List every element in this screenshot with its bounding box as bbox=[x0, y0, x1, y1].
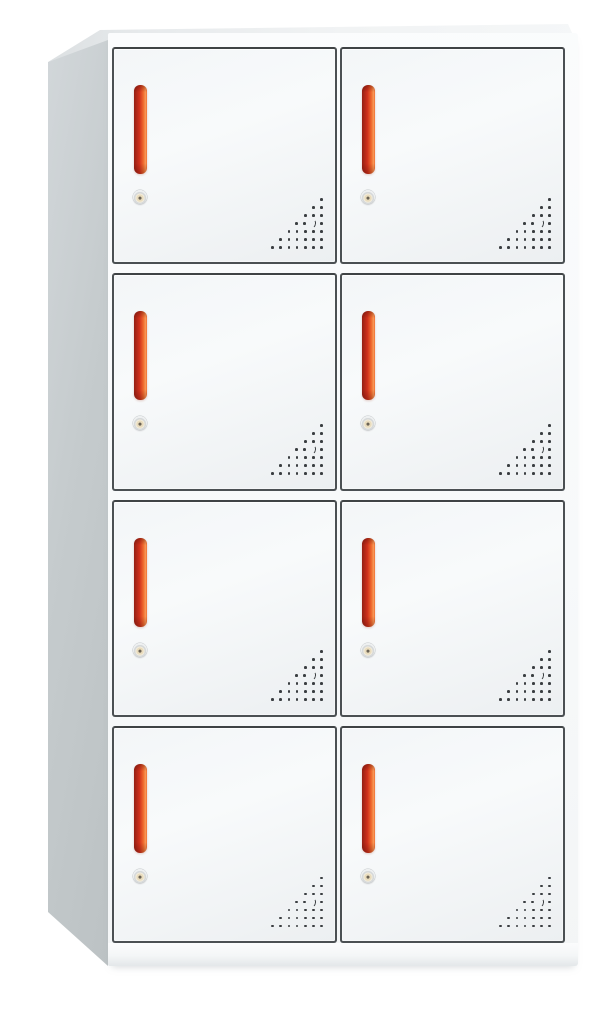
vent-dot bbox=[288, 690, 291, 693]
vent-dot bbox=[540, 893, 543, 896]
vent-dot bbox=[540, 885, 543, 888]
vent-row bbox=[518, 672, 551, 680]
vent-dot bbox=[524, 682, 527, 685]
vent-dot bbox=[540, 682, 543, 685]
vent-dot bbox=[548, 650, 551, 653]
vent-dot bbox=[548, 456, 551, 459]
vent-dot bbox=[312, 690, 315, 693]
vent-dot bbox=[523, 222, 526, 225]
vent-dot bbox=[320, 885, 323, 888]
vent-dot bbox=[296, 472, 299, 475]
vent-dot bbox=[540, 206, 543, 209]
vent-dot bbox=[548, 893, 551, 896]
vent-perforation bbox=[494, 422, 551, 478]
vent-dot bbox=[532, 690, 535, 693]
vent-row bbox=[282, 906, 323, 914]
vent-dot bbox=[548, 901, 551, 904]
vent-dot bbox=[295, 901, 298, 904]
vent-dot bbox=[540, 658, 543, 661]
vent-dot bbox=[312, 440, 315, 443]
vent-dot bbox=[279, 925, 282, 928]
vent-dot bbox=[320, 246, 323, 249]
vent-dot bbox=[312, 246, 315, 249]
vent-row bbox=[502, 235, 551, 243]
vent-dot bbox=[507, 917, 510, 920]
vent-dot bbox=[303, 222, 306, 225]
vent-dot bbox=[271, 472, 274, 475]
vent-row bbox=[543, 874, 551, 882]
vent-row bbox=[282, 227, 323, 235]
vent-dot bbox=[540, 456, 543, 459]
vent-perforation bbox=[494, 195, 551, 251]
vent-dot bbox=[288, 246, 291, 249]
vent-dot bbox=[548, 674, 551, 677]
vent-dot bbox=[304, 698, 307, 701]
vent-dot bbox=[532, 464, 535, 467]
vent-dot bbox=[320, 424, 323, 427]
vent-dot bbox=[304, 917, 307, 920]
vent-dot bbox=[532, 682, 535, 685]
vent-dot bbox=[548, 246, 551, 249]
vent-dot bbox=[540, 432, 543, 435]
vent-dot bbox=[312, 658, 315, 661]
key-lock bbox=[133, 869, 147, 883]
vent-row bbox=[535, 203, 551, 211]
vent-dot bbox=[288, 917, 291, 920]
vent-dot bbox=[288, 230, 291, 233]
vent-dot bbox=[548, 222, 551, 225]
vent-dot bbox=[312, 238, 315, 241]
vent-dot bbox=[296, 682, 299, 685]
vent-dot bbox=[499, 246, 502, 249]
door-handle bbox=[362, 311, 375, 400]
vent-dot bbox=[312, 666, 315, 669]
vent-dot bbox=[320, 456, 323, 459]
vent-dot bbox=[288, 464, 291, 467]
vent-dot bbox=[320, 917, 323, 920]
vent-dot bbox=[295, 674, 298, 677]
vent-dot bbox=[312, 917, 315, 920]
locker-door bbox=[112, 726, 337, 943]
vent-dot bbox=[516, 472, 519, 475]
vent-dot bbox=[288, 925, 291, 928]
vent-row bbox=[315, 874, 323, 882]
vent-row bbox=[494, 470, 551, 478]
vent-row bbox=[510, 454, 551, 462]
key-lock bbox=[133, 416, 147, 430]
vent-dot bbox=[288, 909, 291, 912]
vent-dot bbox=[320, 666, 323, 669]
vent-dot bbox=[304, 238, 307, 241]
key-lock bbox=[133, 643, 147, 657]
door-handle bbox=[362, 85, 375, 174]
locker-door bbox=[112, 500, 337, 717]
vent-dot bbox=[279, 917, 282, 920]
vent-row bbox=[307, 203, 323, 211]
vent-dot bbox=[524, 472, 527, 475]
vent-dot bbox=[296, 456, 299, 459]
locker-door bbox=[340, 47, 565, 264]
vent-dot bbox=[532, 238, 535, 241]
vent-dot bbox=[531, 901, 534, 904]
vent-row bbox=[298, 890, 323, 898]
vent-dot bbox=[320, 893, 323, 896]
key-lock bbox=[133, 190, 147, 204]
vent-dot bbox=[540, 909, 543, 912]
vent-dot bbox=[524, 230, 527, 233]
vent-dot bbox=[288, 238, 291, 241]
vent-row bbox=[535, 656, 551, 664]
vent-dot bbox=[548, 698, 551, 701]
vent-dot bbox=[548, 917, 551, 920]
vent-dot bbox=[532, 472, 535, 475]
vent-dot bbox=[304, 246, 307, 249]
door-handle bbox=[362, 764, 375, 853]
vent-dot bbox=[279, 246, 282, 249]
vent-dot bbox=[532, 246, 535, 249]
vent-row bbox=[307, 430, 323, 438]
vent-dot bbox=[516, 238, 519, 241]
vent-dot bbox=[524, 925, 527, 928]
vent-dot bbox=[288, 472, 291, 475]
vent-row bbox=[543, 422, 551, 430]
vent-dot bbox=[540, 472, 543, 475]
vent-perforation bbox=[266, 422, 323, 478]
vent-dot bbox=[523, 674, 526, 677]
vent-dot bbox=[524, 690, 527, 693]
vent-dot bbox=[516, 230, 519, 233]
vent-dot bbox=[279, 690, 282, 693]
vent-dot bbox=[507, 698, 510, 701]
vent-dot bbox=[516, 682, 519, 685]
vent-dot bbox=[507, 238, 510, 241]
vent-dot bbox=[296, 238, 299, 241]
vent-dot bbox=[548, 432, 551, 435]
vent-dot bbox=[516, 456, 519, 459]
vent-dot bbox=[548, 682, 551, 685]
vent-perforation bbox=[494, 874, 551, 930]
vent-dot bbox=[516, 698, 519, 701]
vent-dot bbox=[312, 698, 315, 701]
product-photo-locker-cabinet bbox=[0, 0, 605, 1009]
vent-dot bbox=[320, 650, 323, 653]
vent-dot bbox=[516, 909, 519, 912]
vent-dot bbox=[320, 877, 323, 880]
door-grid bbox=[112, 47, 565, 943]
vent-dot bbox=[320, 682, 323, 685]
vent-dot bbox=[312, 925, 315, 928]
vent-dot bbox=[320, 901, 323, 904]
vent-dot bbox=[540, 214, 543, 217]
vent-dot bbox=[532, 893, 535, 896]
vent-dot bbox=[516, 925, 519, 928]
vent-dot bbox=[296, 230, 299, 233]
vent-dot bbox=[531, 222, 534, 225]
vent-dot bbox=[548, 666, 551, 669]
vent-row bbox=[535, 430, 551, 438]
vent-dot bbox=[296, 909, 299, 912]
vent-row bbox=[307, 882, 323, 890]
locker-door bbox=[340, 500, 565, 717]
key-lock bbox=[361, 869, 375, 883]
vent-dot bbox=[304, 682, 307, 685]
key-lock bbox=[361, 416, 375, 430]
vent-dot bbox=[548, 238, 551, 241]
locker-door bbox=[112, 47, 337, 264]
vent-row bbox=[518, 219, 551, 227]
vent-row bbox=[266, 470, 323, 478]
vent-dot bbox=[516, 246, 519, 249]
vent-dot bbox=[304, 214, 307, 217]
vent-dot bbox=[516, 690, 519, 693]
vent-dot bbox=[548, 424, 551, 427]
door-handle bbox=[134, 764, 147, 853]
vent-dot bbox=[532, 917, 535, 920]
vent-dot bbox=[288, 682, 291, 685]
vent-dot bbox=[548, 206, 551, 209]
vent-row bbox=[266, 922, 323, 930]
vent-row bbox=[543, 195, 551, 203]
vent-row bbox=[518, 898, 551, 906]
vent-dot bbox=[304, 472, 307, 475]
vent-dot bbox=[524, 456, 527, 459]
vent-dot bbox=[524, 238, 527, 241]
vent-dot bbox=[548, 658, 551, 661]
vent-dot bbox=[320, 198, 323, 201]
cabinet-left-side-panel bbox=[48, 40, 108, 966]
vent-dot bbox=[540, 698, 543, 701]
vent-row bbox=[290, 898, 323, 906]
vent-dot bbox=[532, 666, 535, 669]
vent-dot bbox=[548, 877, 551, 880]
vent-dot bbox=[320, 674, 323, 677]
vent-row bbox=[282, 680, 323, 688]
vent-dot bbox=[532, 456, 535, 459]
vent-dot bbox=[524, 464, 527, 467]
vent-dot bbox=[548, 198, 551, 201]
vent-dot bbox=[320, 214, 323, 217]
vent-dot bbox=[532, 214, 535, 217]
vent-dot bbox=[288, 698, 291, 701]
vent-dot bbox=[312, 885, 315, 888]
vent-dot bbox=[296, 464, 299, 467]
vent-dot bbox=[548, 448, 551, 451]
vent-row bbox=[494, 243, 551, 251]
vent-dot bbox=[304, 440, 307, 443]
vent-perforation bbox=[266, 195, 323, 251]
vent-row bbox=[510, 227, 551, 235]
vent-dot bbox=[540, 440, 543, 443]
vent-row bbox=[282, 454, 323, 462]
vent-dot bbox=[507, 464, 510, 467]
vent-dot bbox=[540, 690, 543, 693]
vent-dot bbox=[271, 925, 274, 928]
vent-dot bbox=[279, 464, 282, 467]
vent-row bbox=[290, 219, 323, 227]
vent-dot bbox=[320, 238, 323, 241]
vent-dot bbox=[548, 464, 551, 467]
vent-dot bbox=[548, 230, 551, 233]
vent-row bbox=[290, 446, 323, 454]
vent-row bbox=[543, 648, 551, 656]
vent-perforation bbox=[266, 648, 323, 704]
vent-dot bbox=[279, 698, 282, 701]
vent-row bbox=[535, 882, 551, 890]
cabinet-front bbox=[108, 33, 578, 966]
vent-dot bbox=[304, 893, 307, 896]
vent-dot bbox=[296, 246, 299, 249]
vent-dot bbox=[303, 901, 306, 904]
vent-dot bbox=[271, 698, 274, 701]
vent-dot bbox=[312, 206, 315, 209]
vent-dot bbox=[320, 206, 323, 209]
vent-dot bbox=[531, 674, 534, 677]
vent-dot bbox=[540, 230, 543, 233]
vent-dot bbox=[295, 448, 298, 451]
vent-dot bbox=[320, 690, 323, 693]
vent-dot bbox=[320, 230, 323, 233]
vent-dot bbox=[303, 448, 306, 451]
locker-door bbox=[340, 726, 565, 943]
vent-row bbox=[510, 680, 551, 688]
vent-dot bbox=[524, 698, 527, 701]
vent-dot bbox=[532, 909, 535, 912]
vent-dot bbox=[531, 448, 534, 451]
vent-row bbox=[290, 672, 323, 680]
vent-dot bbox=[312, 230, 315, 233]
vent-dot bbox=[540, 464, 543, 467]
vent-dot bbox=[499, 925, 502, 928]
vent-dot bbox=[524, 909, 527, 912]
vent-dot bbox=[540, 238, 543, 241]
vent-dot bbox=[312, 472, 315, 475]
vent-dot bbox=[540, 925, 543, 928]
vent-row bbox=[502, 914, 551, 922]
vent-dot bbox=[516, 464, 519, 467]
vent-dot bbox=[507, 246, 510, 249]
vent-dot bbox=[271, 246, 274, 249]
vent-row bbox=[315, 422, 323, 430]
vent-dot bbox=[320, 222, 323, 225]
key-lock bbox=[361, 190, 375, 204]
vent-dot bbox=[320, 658, 323, 661]
vent-dot bbox=[548, 909, 551, 912]
vent-dot bbox=[312, 214, 315, 217]
vent-dot bbox=[296, 690, 299, 693]
vent-dot bbox=[320, 448, 323, 451]
vent-dot bbox=[548, 885, 551, 888]
vent-row bbox=[266, 243, 323, 251]
vent-dot bbox=[540, 246, 543, 249]
vent-dot bbox=[507, 690, 510, 693]
cabinet-base bbox=[108, 943, 578, 966]
vent-dot bbox=[532, 230, 535, 233]
vent-perforation bbox=[266, 874, 323, 930]
vent-dot bbox=[548, 214, 551, 217]
vent-row bbox=[526, 890, 551, 898]
vent-dot bbox=[524, 246, 527, 249]
vent-dot bbox=[320, 472, 323, 475]
vent-dot bbox=[516, 917, 519, 920]
vent-dot bbox=[548, 440, 551, 443]
vent-row bbox=[274, 688, 323, 696]
vent-row bbox=[315, 648, 323, 656]
vent-row bbox=[502, 688, 551, 696]
vent-dot bbox=[540, 917, 543, 920]
vent-dot bbox=[532, 698, 535, 701]
vent-row bbox=[510, 906, 551, 914]
vent-row bbox=[274, 235, 323, 243]
vent-dot bbox=[548, 925, 551, 928]
vent-dot bbox=[320, 464, 323, 467]
vent-dot bbox=[303, 674, 306, 677]
vent-dot bbox=[548, 472, 551, 475]
door-handle bbox=[134, 311, 147, 400]
vent-dot bbox=[279, 238, 282, 241]
vent-dot bbox=[499, 472, 502, 475]
vent-row bbox=[494, 922, 551, 930]
vent-dot bbox=[312, 432, 315, 435]
vent-row bbox=[307, 656, 323, 664]
vent-row bbox=[518, 446, 551, 454]
vent-dot bbox=[312, 456, 315, 459]
vent-dot bbox=[320, 432, 323, 435]
vent-perforation bbox=[494, 648, 551, 704]
vent-row bbox=[315, 195, 323, 203]
vent-dot bbox=[295, 222, 298, 225]
vent-dot bbox=[320, 909, 323, 912]
vent-dot bbox=[304, 909, 307, 912]
vent-dot bbox=[523, 448, 526, 451]
door-handle bbox=[134, 85, 147, 174]
vent-dot bbox=[296, 917, 299, 920]
vent-dot bbox=[296, 698, 299, 701]
vent-dot bbox=[304, 925, 307, 928]
vent-dot bbox=[507, 472, 510, 475]
locker-door bbox=[112, 273, 337, 490]
key-lock bbox=[361, 643, 375, 657]
vent-dot bbox=[499, 698, 502, 701]
vent-dot bbox=[312, 464, 315, 467]
vent-dot bbox=[288, 456, 291, 459]
vent-dot bbox=[523, 901, 526, 904]
vent-row bbox=[494, 696, 551, 704]
vent-dot bbox=[296, 925, 299, 928]
vent-dot bbox=[320, 925, 323, 928]
vent-dot bbox=[320, 440, 323, 443]
vent-dot bbox=[320, 698, 323, 701]
vent-dot bbox=[304, 666, 307, 669]
vent-dot bbox=[304, 230, 307, 233]
vent-dot bbox=[532, 440, 535, 443]
door-handle bbox=[134, 538, 147, 627]
door-handle bbox=[362, 538, 375, 627]
vent-dot bbox=[312, 909, 315, 912]
vent-dot bbox=[548, 690, 551, 693]
vent-dot bbox=[304, 464, 307, 467]
vent-row bbox=[274, 914, 323, 922]
vent-dot bbox=[312, 682, 315, 685]
vent-dot bbox=[532, 925, 535, 928]
vent-row bbox=[266, 696, 323, 704]
vent-row bbox=[274, 462, 323, 470]
vent-dot bbox=[304, 456, 307, 459]
vent-row bbox=[502, 462, 551, 470]
vent-dot bbox=[507, 925, 510, 928]
locker-door bbox=[340, 273, 565, 490]
vent-dot bbox=[540, 666, 543, 669]
vent-dot bbox=[312, 893, 315, 896]
